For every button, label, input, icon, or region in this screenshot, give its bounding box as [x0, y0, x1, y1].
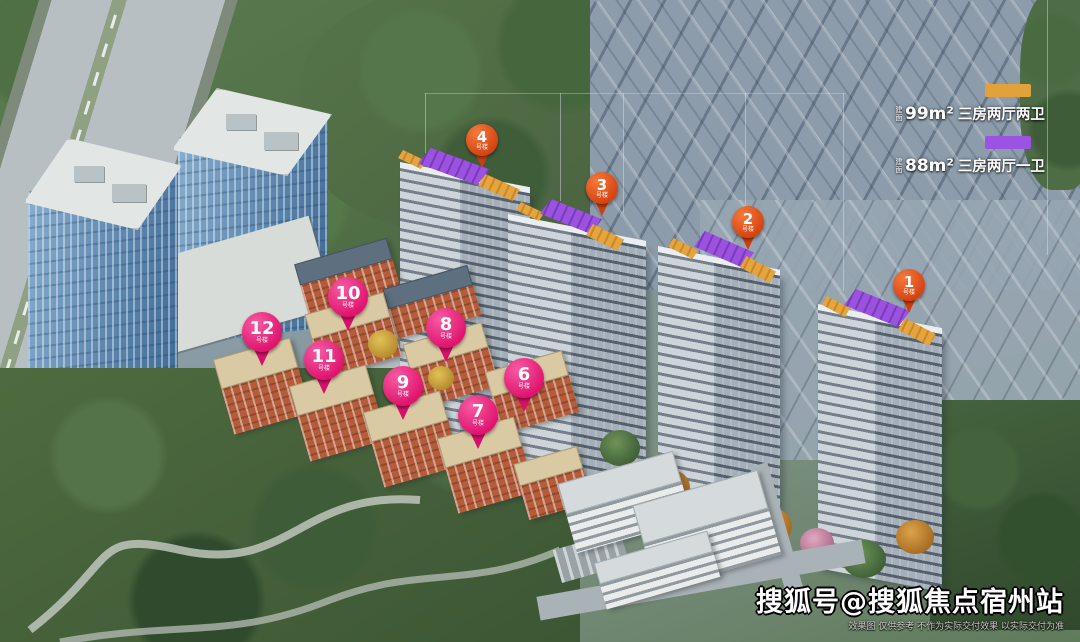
watermark-disclaimer: 效果图 仅供参考 不作为实际交付效果 以实际交付为准	[756, 619, 1064, 632]
legend-row-99: 建面 99m² 三房两厅两卫	[895, 84, 1065, 124]
legend-prefix: 建面	[895, 158, 903, 174]
lowrise-pin-10: 10号楼	[328, 277, 368, 331]
legend-area: 99m²	[905, 104, 954, 124]
legend-row-88: 建面 88m² 三房两厅一卫	[895, 136, 1065, 176]
boundary-line-5	[843, 93, 844, 291]
tower-pin-2: 2号楼	[732, 206, 764, 250]
legend-rooms: 三房两厅一卫	[958, 155, 1045, 176]
pin-number: 7	[472, 403, 485, 420]
lowrise-pin-7: 7号楼	[458, 395, 498, 449]
pin-suffix: 号楼	[342, 302, 354, 309]
boundary-line-3	[623, 93, 624, 213]
legend-swatch-88-purple	[985, 136, 1031, 149]
pin-suffix: 号楼	[397, 391, 409, 398]
pin-suffix: 号楼	[256, 337, 268, 344]
watermark-account: 搜狐号@搜狐焦点宿州站	[756, 580, 1064, 619]
legend-prefix: 建面	[895, 106, 903, 122]
rooftop-unit	[264, 132, 298, 150]
lowrise-pin-12: 12号楼	[242, 312, 282, 366]
pin-number: 10	[335, 285, 360, 302]
rooftop-unit	[226, 114, 256, 130]
pin-suffix: 号楼	[903, 289, 915, 296]
legend-rooms: 三房两厅两卫	[958, 103, 1045, 124]
pin-number: 9	[397, 374, 410, 391]
legend-area: 88m²	[905, 156, 954, 176]
pin-number: 2	[743, 212, 753, 226]
boundary-line-top	[425, 93, 845, 94]
autumn-tree	[428, 366, 454, 390]
unit-type-legend: 建面 99m² 三房两厅两卫 建面 88m² 三房两厅一卫	[895, 84, 1065, 188]
pin-number: 3	[597, 178, 607, 192]
lowrise-pin-9: 9号楼	[383, 366, 423, 420]
pin-suffix: 号楼	[472, 420, 484, 427]
pin-number: 4	[477, 130, 487, 144]
tower-pin-3: 3号楼	[586, 172, 618, 216]
pin-number: 8	[440, 316, 453, 333]
pin-suffix: 号楼	[596, 192, 608, 199]
lowrise-pin-6: 6号楼	[504, 358, 544, 412]
boundary-line-1	[425, 93, 426, 153]
tree	[600, 430, 640, 466]
lowrise-pin-11: 11号楼	[304, 340, 344, 394]
pin-number: 6	[518, 366, 531, 383]
aerial-render-scene: 建面 99m² 三房两厅两卫 建面 88m² 三房两厅一卫 4号楼 3号楼 2号…	[0, 0, 1080, 642]
pin-suffix: 号楼	[440, 333, 452, 340]
boundary-line-2	[560, 93, 561, 201]
rooftop-unit	[74, 166, 104, 182]
legend-swatch-99-orange	[985, 84, 1031, 97]
lowrise-pin-8: 8号楼	[426, 308, 466, 362]
pin-suffix: 号楼	[476, 144, 488, 151]
autumn-tree	[896, 520, 934, 554]
tower-pin-1: 1号楼	[893, 269, 925, 313]
pin-number: 12	[249, 320, 274, 337]
autumn-tree	[368, 330, 398, 358]
pin-suffix: 号楼	[318, 365, 330, 372]
pin-number: 1	[904, 275, 914, 289]
tower-pin-4: 4号楼	[466, 124, 498, 168]
watermark: 搜狐号@搜狐焦点宿州站 效果图 仅供参考 不作为实际交付效果 以实际交付为准	[756, 580, 1064, 632]
pin-number: 11	[311, 348, 336, 365]
pin-suffix: 号楼	[742, 226, 754, 233]
pin-suffix: 号楼	[518, 383, 530, 390]
rooftop-unit	[112, 184, 146, 202]
